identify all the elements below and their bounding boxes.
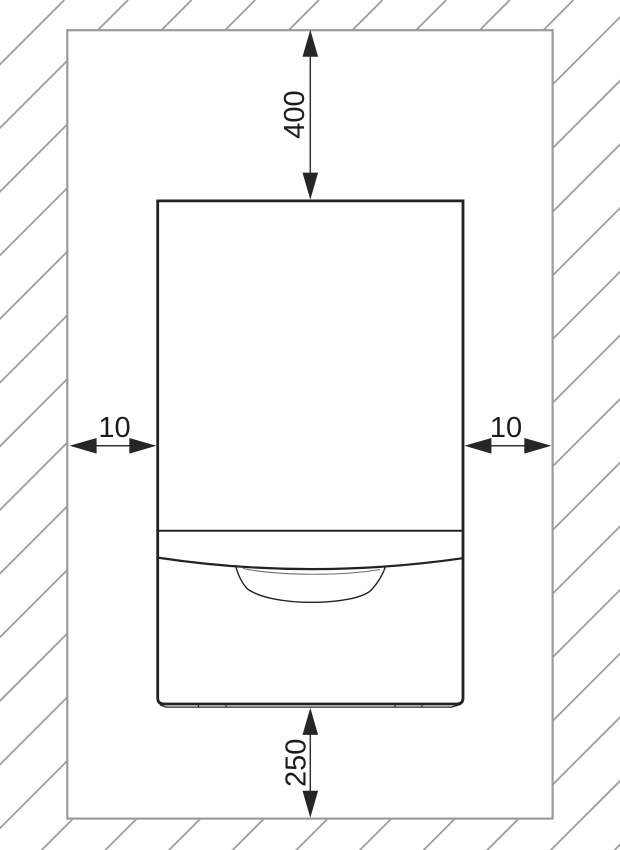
- svg-text:400: 400: [279, 90, 311, 138]
- svg-text:10: 10: [98, 412, 130, 444]
- svg-text:10: 10: [490, 412, 522, 444]
- svg-text:250: 250: [281, 739, 313, 787]
